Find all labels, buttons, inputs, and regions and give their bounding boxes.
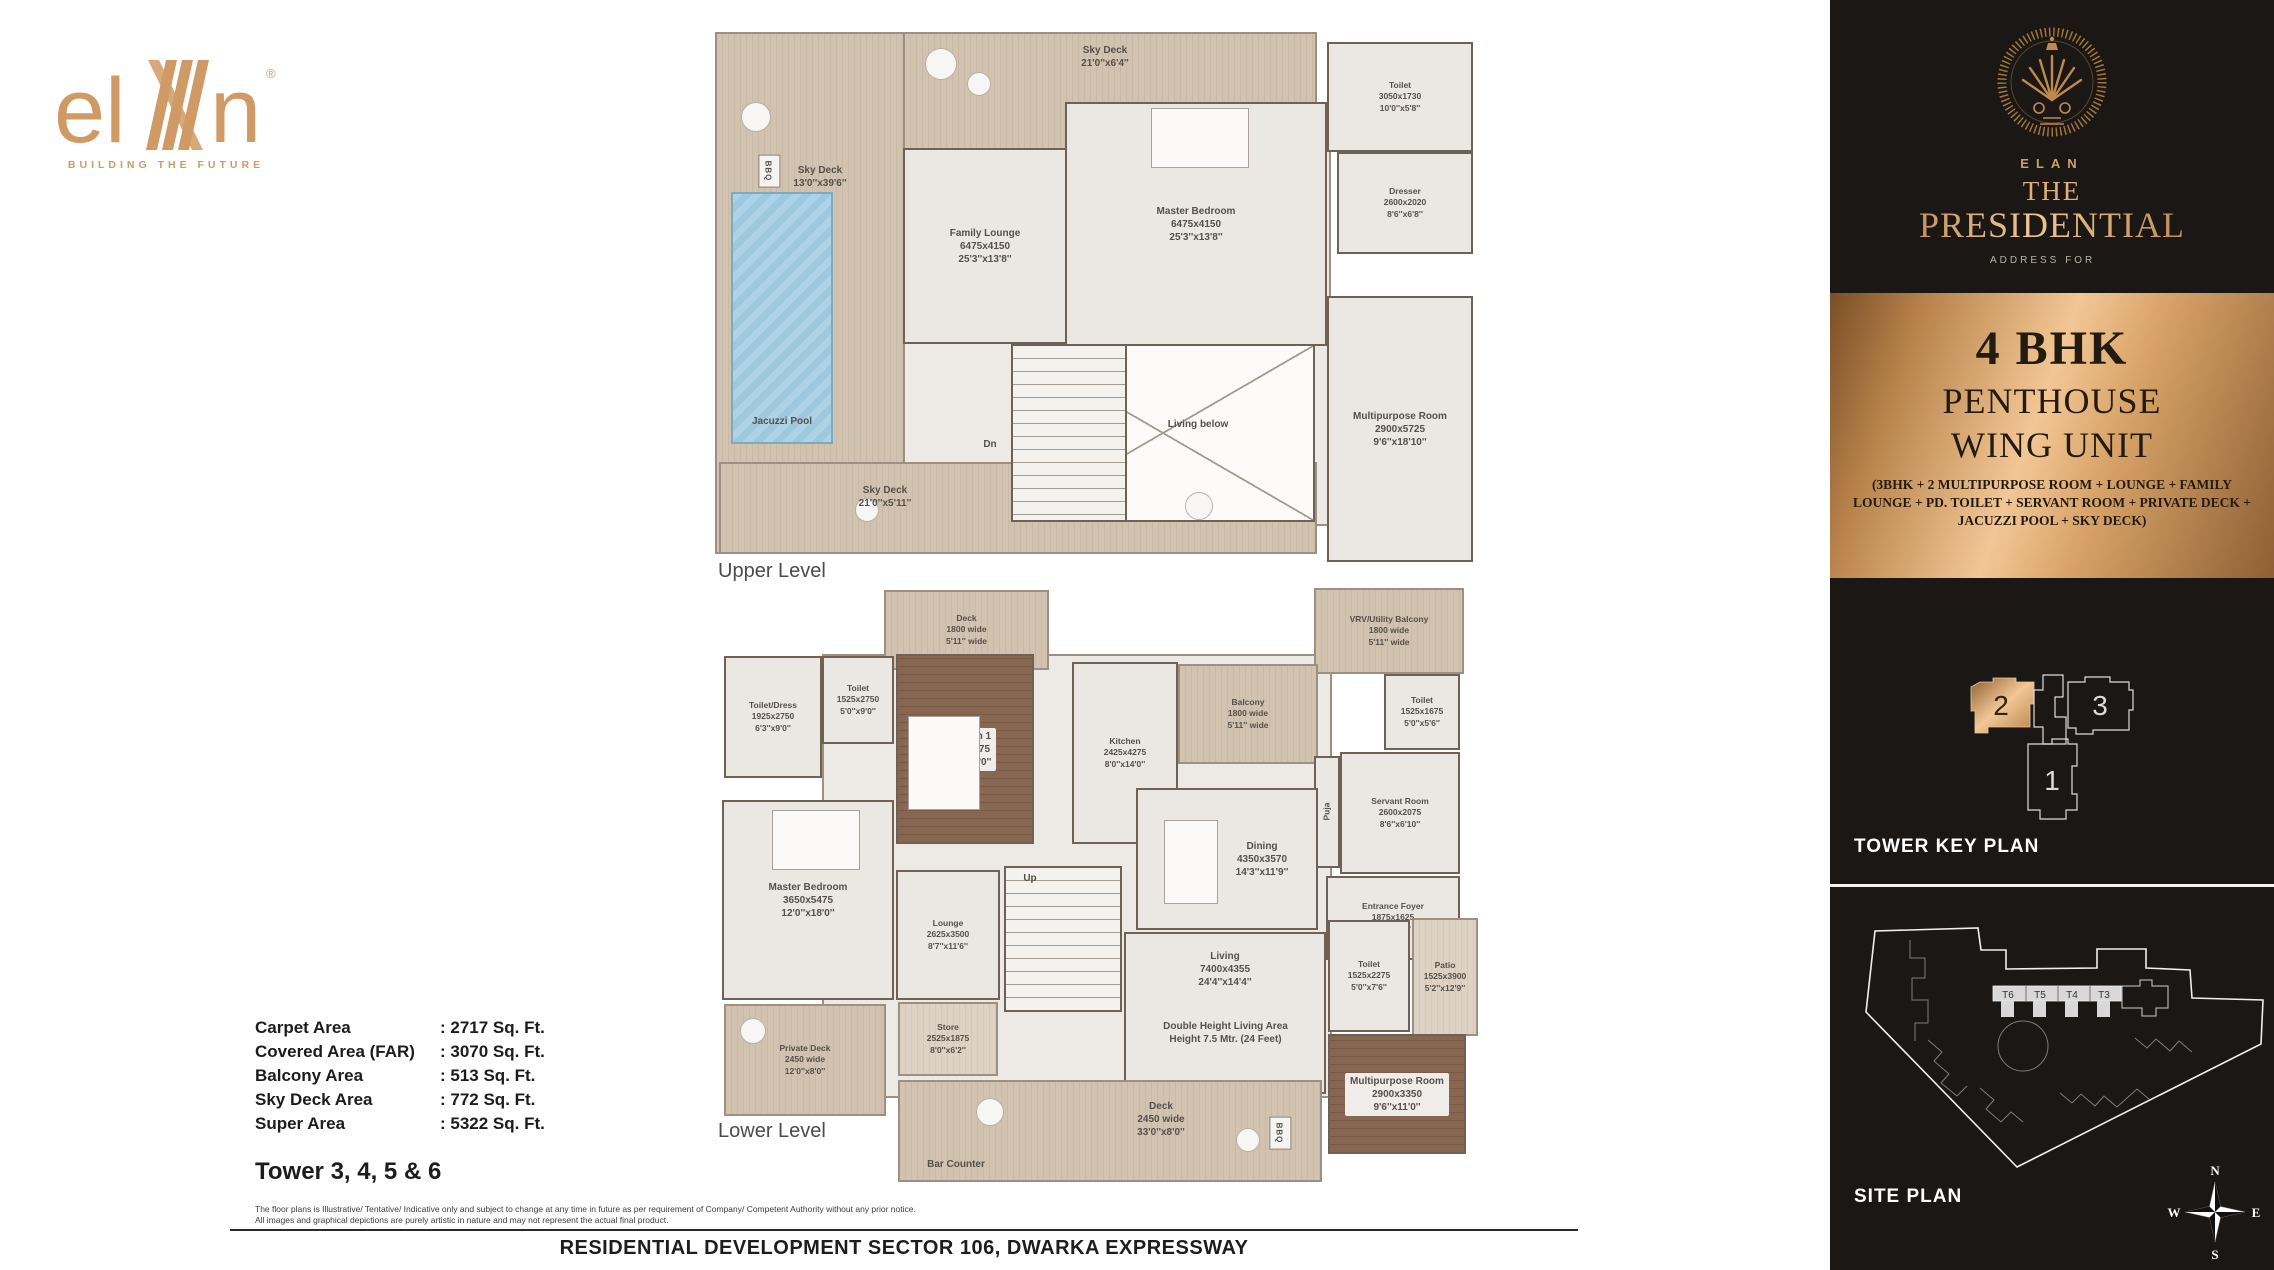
brochure-page: el n ® BUILDING THE FUTURE Sky Deck 21'0…: [0, 0, 2274, 1270]
label-bar-counter: Bar Counter: [906, 1158, 1006, 1171]
elan-logo-n: n: [210, 60, 261, 162]
footer-divider: [230, 1229, 1578, 1231]
area-row: Covered Area (FAR) : 3070 Sq. Ft.: [255, 1040, 615, 1064]
compass-w: W: [2168, 1205, 2181, 1220]
room-bedroom-1: Bedroom 1 3350x4275 11'0''x14'0'': [896, 654, 1034, 844]
room-master-bedroom-upper: Master Bedroom 6475x4150 25'3''x13'8'': [1065, 102, 1327, 346]
area-table: Carpet Area : 2717 Sq. Ft. Covered Area …: [255, 1016, 615, 1136]
area-row: Carpet Area : 2717 Sq. Ft.: [255, 1016, 615, 1040]
site-tower-t4: T4: [2066, 990, 2078, 1001]
plant-icon: [1236, 1128, 1260, 1152]
area-label: Balcony Area: [255, 1064, 440, 1088]
unit-type-line2: PENTHOUSE: [1830, 380, 2274, 422]
site-tower-t6: T6: [2002, 990, 2014, 1001]
bed-furniture: [908, 716, 980, 810]
elan-logo-graphic: el n ® BUILDING THE FUTURE: [48, 52, 278, 177]
compass-e: E: [2252, 1205, 2261, 1220]
presidential-emblem-icon: [1982, 18, 2122, 158]
disclaimer-line2: All images and graphical depictions are …: [255, 1215, 1255, 1226]
sidebar: ELAN THE PRESIDENTIAL ADDRESS FOR 4 BHK …: [1830, 0, 2274, 1270]
tower-key-plan-graphic: 2 3 1 TOWER KEY PLAN: [1830, 578, 2274, 884]
room-toilet-c: Toilet 1525x2275 5'0''x7'6'': [1328, 920, 1410, 1032]
area-value: : 772 Sq. Ft.: [440, 1088, 535, 1112]
disclaimer-line1: The floor plans is Illustrative/ Tentati…: [255, 1204, 1255, 1215]
compass-n: N: [2210, 1163, 2220, 1178]
lower-level-title: Lower Level: [718, 1120, 826, 1143]
sidebar-brand-title: PRESIDENTIAL: [1830, 204, 2274, 246]
label-deck-bottom: Deck 2450 wide 33'0''x8'0'': [1086, 1100, 1236, 1139]
site-plan-section: T6 T5 T4 T3 N E S W SITE PLAN: [1830, 888, 2274, 1270]
plant-icon: [740, 1018, 766, 1044]
elan-logo-el: el: [54, 60, 126, 162]
room-toilet-b: Toilet 1525x1675 5'0''x5'6'': [1384, 674, 1460, 750]
site-boundary: [1866, 928, 2263, 1167]
sidebar-brand-name: ELAN: [1830, 156, 2274, 171]
site-highlighted-towers: T6 T5 T4 T3: [1993, 980, 2168, 1017]
registered-mark-icon: ®: [266, 66, 276, 81]
dining-table-furniture: [1164, 820, 1218, 904]
key-plan-unit-3-number: 3: [2092, 690, 2108, 721]
bed-furniture: [1151, 108, 1249, 168]
room-label-chip: Multipurpose Room 2900x3350 9'6''x11'0'': [1345, 1073, 1449, 1116]
room-toilet-dress: Toilet/Dress 1925x2750 6'3''x9'0'': [724, 656, 822, 778]
sidebar-brand-the: THE: [1830, 176, 2274, 207]
area-label: Sky Deck Area: [255, 1088, 440, 1112]
room-dining: Dining 4350x3570 14'3''x11'9'': [1136, 788, 1318, 930]
key-plan-core: [2034, 675, 2066, 744]
area-label: Covered Area (FAR): [255, 1040, 440, 1064]
upper-level-title: Upper Level: [718, 560, 826, 583]
room-lounge: Lounge 2625x3500 8'7''x11'6'': [896, 870, 1000, 1000]
area-row: Super Area : 5322 Sq. Ft.: [255, 1112, 615, 1136]
elan-logo: el n ® BUILDING THE FUTURE: [48, 52, 278, 182]
area-value: : 513 Sq. Ft.: [440, 1064, 535, 1088]
label-sky-deck-bottom: Sky Deck 21'0''x5'11'': [810, 484, 960, 510]
room-balcony: Balcony 1800 wide 5'11'' wide: [1178, 664, 1318, 764]
room-multipurpose-lower: Multipurpose Room 2900x3350 9'6''x11'0'': [1328, 1034, 1466, 1154]
plant-icon: [925, 48, 957, 80]
room-store: Store 2525x1875 8'0''x6'2'': [898, 1002, 998, 1076]
plant-icon: [976, 1098, 1004, 1126]
sidebar-brand-subtitle: ADDRESS FOR: [1990, 255, 2095, 266]
elan-logo-a-icon: [146, 60, 209, 150]
room-toilet-upper: Toilet 3050x1730 10'0''x5'8'': [1327, 42, 1473, 152]
plant-icon: [741, 102, 771, 132]
label-double-height: Double Height Living Area Height 7.5 Mtr…: [1128, 1020, 1323, 1046]
area-label: Carpet Area: [255, 1016, 440, 1040]
bed-furniture: [772, 810, 860, 870]
label-living-below: Living below: [1113, 418, 1283, 431]
unit-type-line1: 4 BHK: [1830, 293, 2274, 376]
stairs-lower: [1004, 866, 1122, 1012]
room-patio: Patio 1525x3900 5'2''x12'9'': [1412, 918, 1478, 1036]
area-row: Balcony Area : 513 Sq. Ft.: [255, 1064, 615, 1088]
area-label: Super Area: [255, 1112, 440, 1136]
site-building-outlines: [1910, 940, 2192, 1122]
site-plan-graphic: T6 T5 T4 T3 N E S W SITE PLAN: [1830, 888, 2274, 1270]
site-tower-t3: T3: [2098, 990, 2110, 1001]
disclaimer: The floor plans is Illustrative/ Tentati…: [255, 1204, 1255, 1227]
stairs-upper: [1011, 344, 1127, 522]
area-value: : 3070 Sq. Ft.: [440, 1040, 545, 1064]
room-dresser: Dresser 2600x2020 8'6''x6'8'': [1337, 152, 1473, 254]
room-jacuzzi-pool: Jacuzzi Pool: [731, 192, 833, 444]
compass-s: S: [2211, 1247, 2218, 1262]
bbq-counter-lower: BBQ: [1269, 1117, 1291, 1150]
sidebar-brand-block: ELAN THE PRESIDENTIAL ADDRESS FOR: [1830, 0, 2274, 293]
label-dn: Dn: [973, 438, 1007, 451]
key-plan-unit-1-number: 1: [2044, 765, 2060, 796]
area-value: : 5322 Sq. Ft.: [440, 1112, 545, 1136]
room-family-lounge: Family Lounge 6475x4150 25'3''x13'8'': [903, 148, 1067, 344]
room-vrv-utility-balcony: VRV/Utility Balcony 1800 wide 5'11'' wid…: [1314, 588, 1464, 674]
room-master-bedroom-lower: Master Bedroom 3650x5475 12'0''x18'0'': [722, 800, 894, 1000]
tower-key-plan-section: 2 3 1 TOWER KEY PLAN: [1830, 578, 2274, 884]
footer-address: RESIDENTIAL DEVELOPMENT SECTOR 106, DWAR…: [230, 1237, 1578, 1260]
label-sky-deck-top: Sky Deck 21'0''x6'4'': [1030, 44, 1180, 70]
room-servant: Servant Room 2600x2075 8'6''x6'10'': [1340, 752, 1460, 874]
key-plan-unit-2-number: 2: [1993, 690, 2009, 721]
area-value: : 2717 Sq. Ft.: [440, 1016, 545, 1040]
site-plan-label: SITE PLAN: [1854, 1186, 1962, 1207]
site-tower-t5: T5: [2034, 990, 2046, 1001]
room-toilet-a: Toilet 1525x2750 5'0''x9'0'': [822, 656, 894, 744]
plant-icon: [967, 72, 991, 96]
label-up: Up: [1012, 872, 1048, 885]
unit-type-panel: 4 BHK PENTHOUSE WING UNIT (3BHK + 2 MULT…: [1830, 293, 2274, 578]
tower-numbers: Tower 3, 4, 5 & 6: [255, 1158, 441, 1186]
upper-level-plan: Sky Deck 21'0''x6'4'' Sky Deck 13'0''x39…: [715, 14, 1475, 562]
compass-icon: N E S W: [2168, 1163, 2261, 1262]
sidebar-divider: [1830, 884, 2274, 887]
tower-key-plan-label: TOWER KEY PLAN: [1854, 836, 2039, 857]
room-multipurpose-upper: Multipurpose Room 2900x5725 9'6''x18'10'…: [1327, 296, 1473, 562]
area-row: Sky Deck Area : 772 Sq. Ft.: [255, 1088, 615, 1112]
label-living: Living 7400x4355 24'4''x14'4'': [1144, 950, 1306, 989]
bbq-counter-upper: BBQ: [758, 155, 780, 188]
unit-type-details: (3BHK + 2 MULTIPURPOSE ROOM + LOUNGE + F…: [1848, 476, 2256, 531]
elan-tagline: BUILDING THE FUTURE: [68, 159, 264, 171]
plant-icon: [1185, 492, 1213, 520]
lower-level-plan: Deck 1800 wide 5'11'' wide VRV/Utility B…: [716, 588, 1506, 1198]
unit-type-line3: WING UNIT: [1830, 424, 2274, 466]
